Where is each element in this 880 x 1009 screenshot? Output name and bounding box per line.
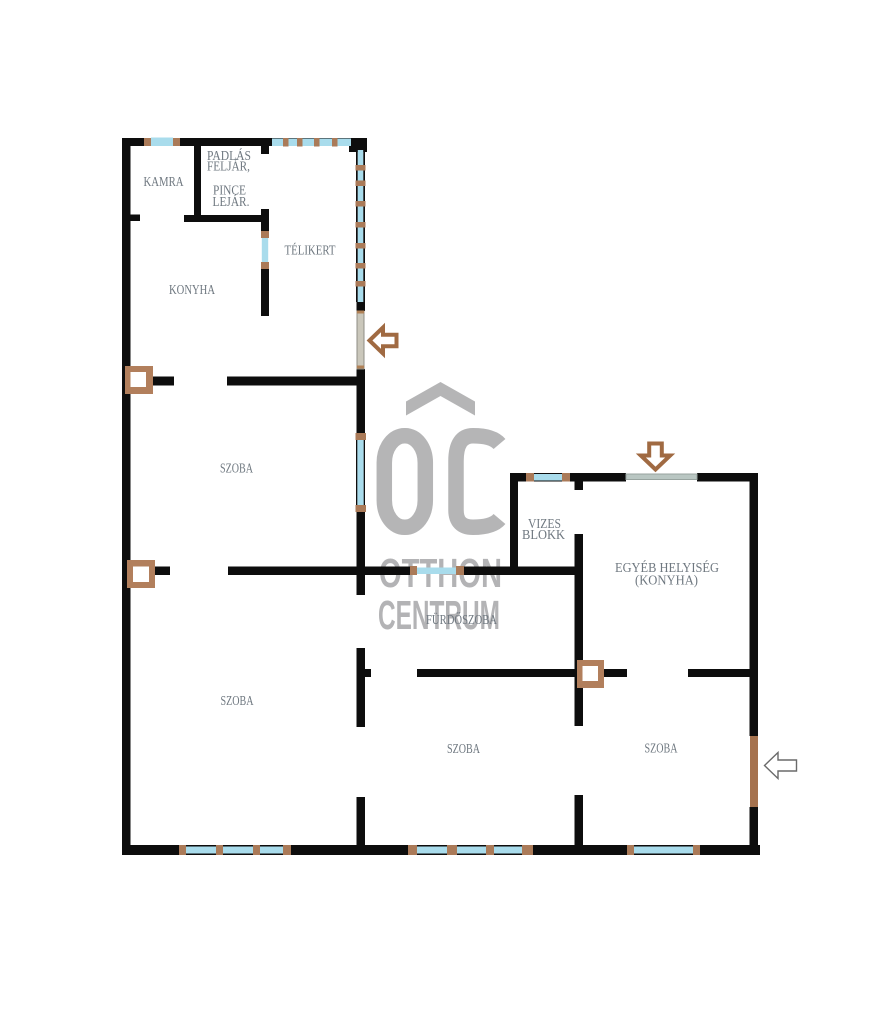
svg-text:KONYHA: KONYHA <box>169 282 215 297</box>
svg-text:FÜRDŐSZOBA: FÜRDŐSZOBA <box>426 612 497 627</box>
svg-text:SZOBA: SZOBA <box>221 693 254 708</box>
svg-text:SZOBA: SZOBA <box>447 741 480 756</box>
svg-text:FELJÁR,: FELJÁR, <box>207 159 250 174</box>
svg-text:BLOKK: BLOKK <box>522 527 565 542</box>
svg-text:(KONYHA): (KONYHA) <box>635 573 698 588</box>
svg-text:KAMRA: KAMRA <box>144 174 184 189</box>
svg-text:SZOBA: SZOBA <box>220 461 253 476</box>
svg-text:LEJÁR.: LEJÁR. <box>213 194 250 209</box>
svg-text:SZOBA: SZOBA <box>645 741 678 756</box>
svg-text:TÉLIKERT: TÉLIKERT <box>285 243 337 258</box>
